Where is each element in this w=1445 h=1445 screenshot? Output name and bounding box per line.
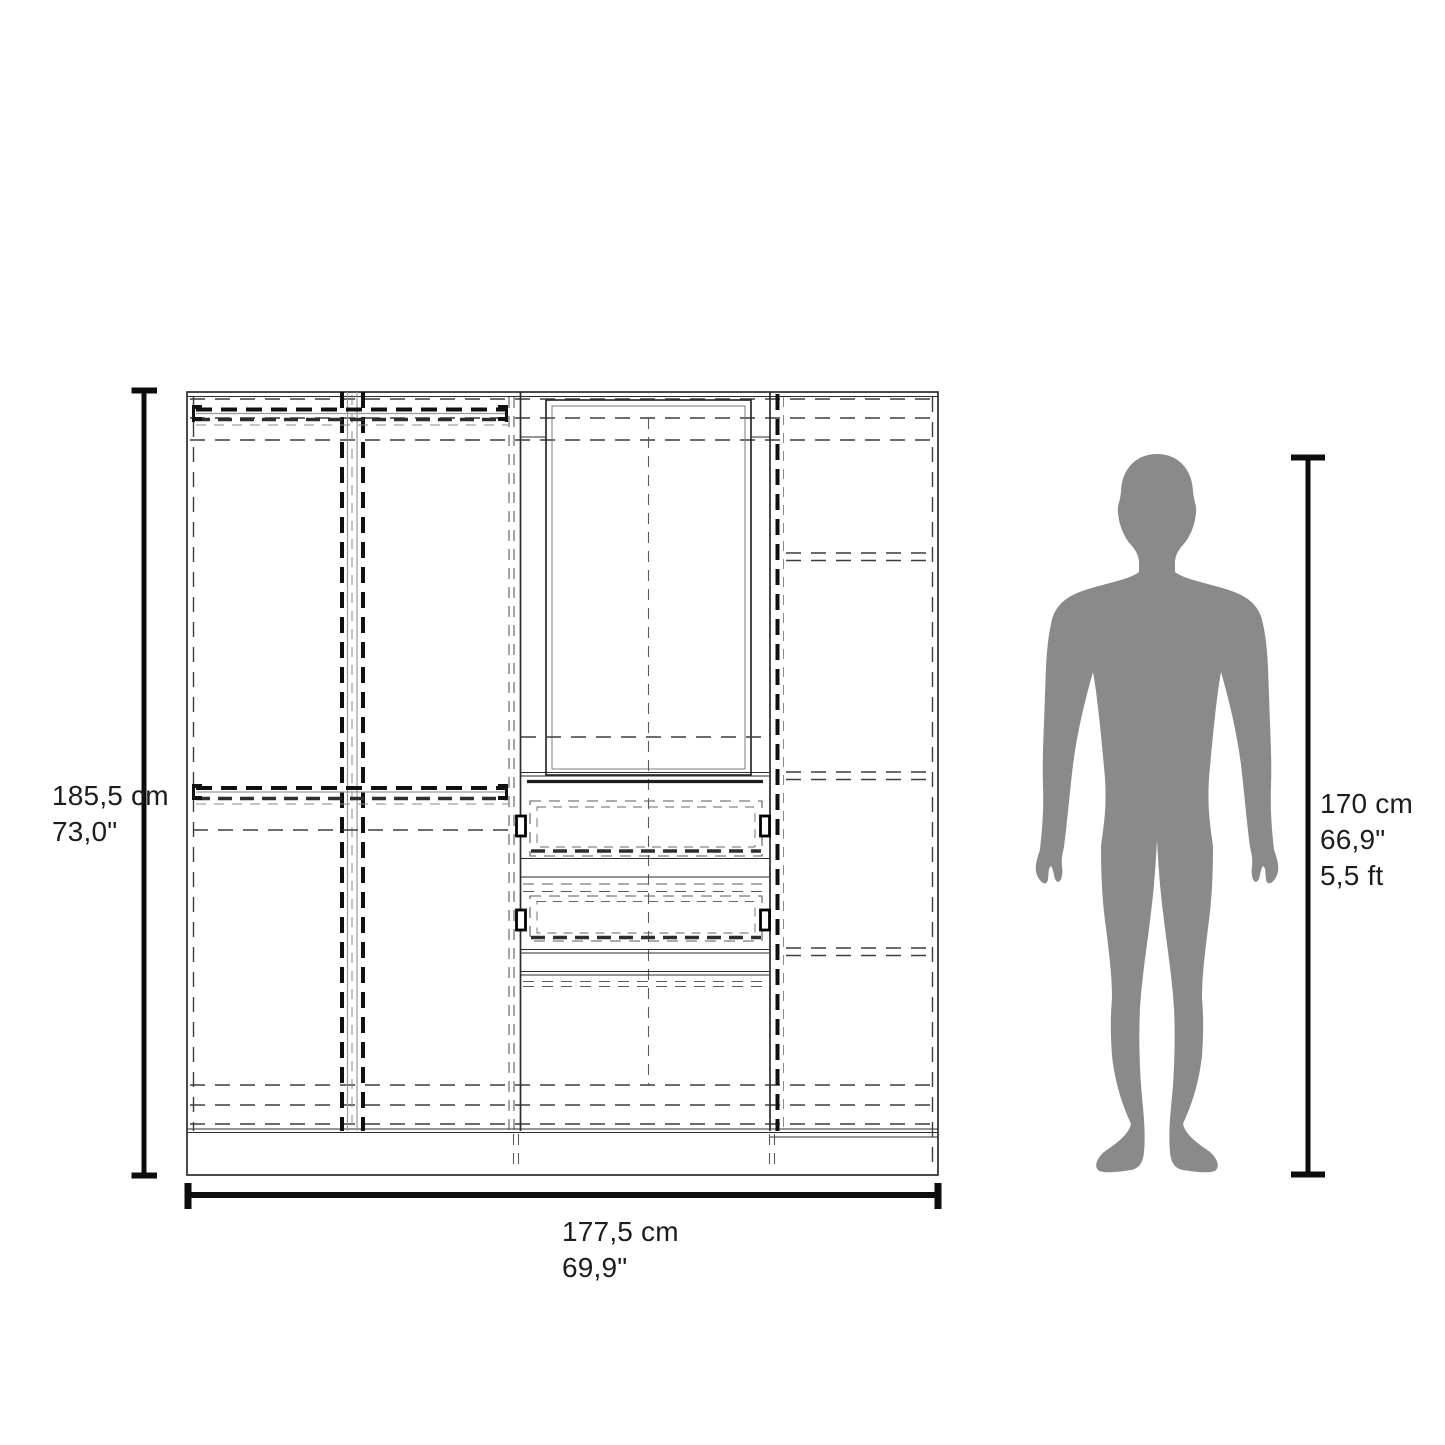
wardrobe-outline	[187, 392, 938, 1175]
plinth-hidden-edges	[514, 1134, 775, 1171]
width-dimension-line	[188, 1183, 938, 1209]
wardrobe-height-cm: 185,5 cm	[52, 778, 169, 814]
dimension-diagram-page: 185,5 cm 73,0" 177,5 cm 69,9" 170 cm 66,…	[0, 0, 1445, 1445]
wardrobe-height-inches: 73,0"	[52, 814, 169, 850]
right-column-shelves	[786, 553, 931, 956]
sliding-door-divider	[342, 392, 363, 1131]
drawer-gap	[521, 877, 769, 892]
drawer-slide-left	[517, 816, 526, 836]
wardrobe-width-inches: 69,9"	[562, 1250, 679, 1286]
drawer-slide-left	[517, 910, 526, 930]
person-height-feet: 5,5 ft	[1320, 858, 1413, 894]
center-cabinet-walls	[509, 392, 784, 1131]
human-silhouette	[1036, 454, 1278, 1172]
wardrobe-height-label: 185,5 cm 73,0"	[52, 778, 169, 850]
mirror-door-panel	[520, 400, 770, 1086]
center-shelf	[521, 773, 769, 782]
person-height-inches: 66,9"	[1320, 822, 1413, 858]
drawer-1	[517, 801, 770, 859]
person-height-cm: 170 cm	[1320, 786, 1413, 822]
wardrobe-technical-drawing	[0, 0, 1445, 1445]
drawer-slide-right	[761, 816, 770, 836]
drawer-2	[517, 896, 770, 941]
drawer-slide-right	[761, 910, 770, 930]
hanging-rod-top	[192, 405, 508, 425]
wardrobe-width-label: 177,5 cm 69,9"	[562, 1214, 679, 1286]
hanging-rod-middle	[192, 784, 514, 830]
wardrobe-width-cm: 177,5 cm	[562, 1214, 679, 1250]
center-lower-shelf-lines	[521, 950, 769, 987]
person-height-label: 170 cm 66,9" 5,5 ft	[1320, 786, 1413, 894]
